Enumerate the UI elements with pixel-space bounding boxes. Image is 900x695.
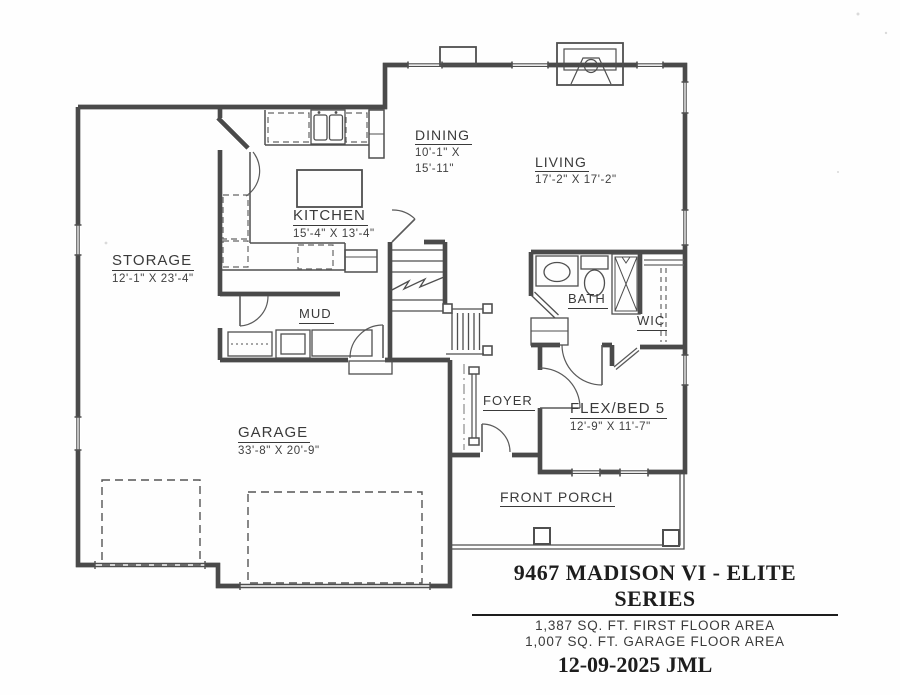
label-storage: STORAGE 12'-1" X 23'-4": [112, 252, 194, 286]
kitchen-counters: [222, 110, 384, 272]
stairs-icon: [390, 250, 444, 311]
room-name: FOYER: [483, 394, 535, 411]
label-flex: FLEX/BED 5 12'-9" X 11'-7": [570, 400, 667, 434]
stair-railing: [443, 304, 492, 355]
kitchen-sink-icon: [311, 110, 345, 144]
mud-counter: [312, 330, 372, 356]
first-floor-area: 1,387 SQ. FT. FIRST FLOOR AREA: [505, 618, 805, 633]
label-kitchen: KITCHEN 15'-4" X 13'-4": [293, 207, 375, 241]
label-living: LIVING 17'-2" X 17'-2": [535, 154, 617, 188]
room-name: WIC: [637, 314, 667, 331]
room-name: GARAGE: [238, 424, 310, 443]
title-block: 9467 MADISON VI - ELITE SERIES 1,387 SQ.…: [472, 560, 838, 678]
front-door-arc: [482, 424, 510, 452]
range-icon: [345, 250, 377, 272]
label-foyer: FOYER: [483, 392, 535, 411]
plan-date: 12-09-2025 JML: [472, 652, 798, 678]
room-name: LIVING: [535, 154, 589, 172]
window-icon: [682, 355, 689, 385]
room-name: DINING: [415, 127, 472, 145]
label-mud: MUD: [299, 305, 334, 324]
window-icon: [682, 82, 689, 113]
storage-mud-door-arc: [240, 296, 268, 326]
room-name: STORAGE: [112, 252, 194, 271]
garage-door-1-opening: [95, 561, 205, 569]
room-dims: 17'-2" X 17'-2": [535, 174, 617, 187]
room-name: KITCHEN: [293, 207, 368, 226]
room-dims: 12'-9" X 11'-7": [570, 421, 667, 434]
label-garage: GARAGE 33'-8" X 20'-9": [238, 424, 320, 458]
linen-closet-icon: [531, 292, 568, 345]
floor-plan-page: STORAGE 12'-1" X 23'-4" KITCHEN 15'-4" X…: [0, 0, 900, 695]
garage-stoop: [349, 361, 392, 374]
label-dining: DINING 10'-1" X 15'-11": [415, 127, 472, 176]
bath-vanity-icon: [536, 256, 578, 286]
room-name: BATH: [568, 292, 608, 309]
room-dims: 33'-8" X 20'-9": [238, 445, 320, 458]
room-name: FRONT PORCH: [500, 489, 615, 507]
room-dims: 15'-11": [415, 163, 472, 176]
kitchen-island: [297, 170, 362, 207]
room-name: FLEX/BED 5: [570, 400, 667, 419]
garage-floor-area: 1,007 SQ. FT. GARAGE FLOOR AREA: [505, 634, 805, 649]
room-name: MUD: [299, 307, 334, 324]
garage-door-1-dashed: [102, 480, 200, 565]
label-bath: BATH: [568, 290, 608, 309]
stair-break-line: [390, 277, 444, 291]
mud-bench-icon: [228, 332, 272, 356]
window-icon: [682, 210, 689, 245]
window-icon: [512, 62, 548, 69]
basement-door-arc: [392, 210, 415, 242]
room-dims: 12'-1" X 23'-4": [112, 273, 194, 286]
label-front-porch: FRONT PORCH: [500, 489, 615, 507]
porch-post: [534, 528, 550, 544]
window-icon: [620, 469, 648, 477]
window-icon: [408, 62, 442, 69]
shower-icon: [612, 254, 640, 314]
window-icon: [572, 469, 600, 477]
chimney-icon: [440, 47, 476, 65]
wic-door-leaf: [614, 348, 639, 370]
kitchen-nook-door-arc: [246, 152, 260, 196]
window-icon: [637, 62, 663, 69]
window-icon: [75, 225, 82, 255]
foyer-sidelight: [464, 364, 479, 450]
label-wic: WIC: [637, 312, 667, 331]
garage-door-2-dashed: [248, 492, 422, 583]
room-dims: 15'-4" X 13'-4": [293, 228, 375, 241]
window-icon: [75, 417, 82, 450]
plan-title: 9467 MADISON VI - ELITE SERIES: [472, 560, 838, 616]
garage-door-tracks: [102, 480, 422, 583]
room-dims: 10'-1" X: [415, 147, 472, 160]
porch-post: [663, 530, 679, 546]
